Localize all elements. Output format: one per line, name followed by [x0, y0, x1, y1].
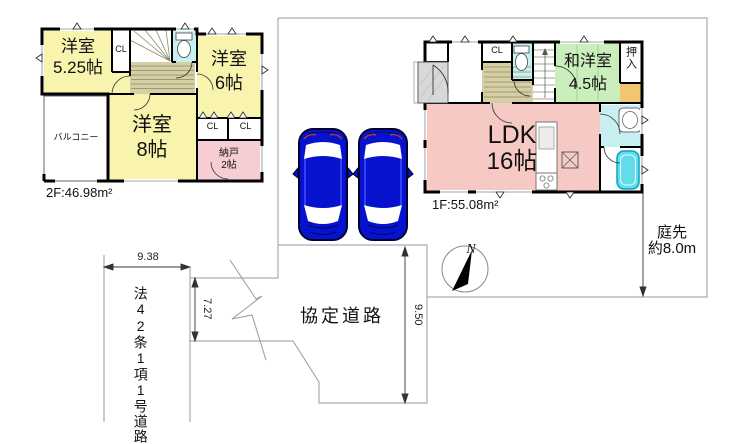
car-icon — [353, 129, 413, 240]
room-label-2f-5-25-name: 洋室 — [48, 38, 108, 56]
floor2-area-label: 2F:46.98m² — [46, 186, 112, 200]
floor1-area-label: 1F:55.08m² — [432, 198, 498, 212]
room-label-2f-8-name: 洋室 — [112, 115, 192, 136]
west-road-label: 法42条1項1号道路 — [133, 286, 148, 426]
oshiire-label: 押入 — [624, 46, 636, 82]
room-label-ldk-size: 16帖 — [462, 149, 562, 174]
closet-label-1f: CL — [485, 46, 509, 55]
room-label-japanese-name: 和洋室 — [553, 54, 623, 71]
garden-label-line2: 約8.0m — [638, 241, 706, 257]
room-label-ldk-name: LDK — [462, 122, 562, 148]
room-label-2f-5-25-size: 5.25帖 — [40, 59, 116, 77]
dimension-727: 7.27 — [200, 289, 212, 329]
car-icon — [293, 129, 353, 240]
closet-label-2f-top: CL — [110, 45, 132, 54]
room-label-2f-6-name: 洋室 — [199, 50, 259, 69]
dimension-950: 9.50 — [411, 295, 423, 335]
room-label-2f-8-size: 8帖 — [112, 140, 192, 161]
garden-label-line1: 庭先 — [642, 225, 702, 241]
compass-north-label: N — [463, 243, 479, 258]
room-label-japanese-size: 4.5帖 — [553, 77, 623, 94]
closet-label-2f-right: CL — [233, 122, 258, 131]
closet-label-2f-left: CL — [200, 122, 225, 131]
agreement-road-label: 協定道路 — [300, 307, 384, 326]
break-line-symbol — [230, 260, 266, 360]
balcony-label: バルコニー — [46, 133, 106, 142]
floor-plan-page: 洋室 5.25帖 CL 洋室 6帖 洋室 8帖 バルコニー CL CL 納戸 2… — [0, 0, 740, 444]
storage-label-size: 2帖 — [199, 161, 259, 172]
room-label-2f-6-size: 6帖 — [199, 74, 259, 93]
storage-label-name: 納戸 — [199, 149, 259, 160]
dimension-938: 9.38 — [128, 252, 168, 264]
